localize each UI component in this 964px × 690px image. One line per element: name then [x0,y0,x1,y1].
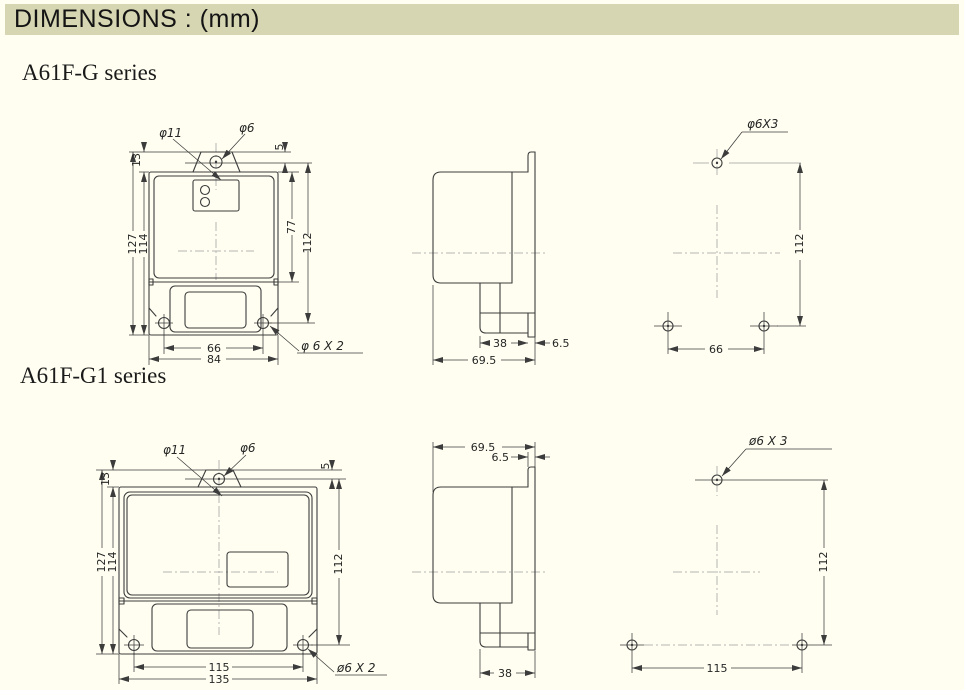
g1-hole-pattern-drawing: ø6 X 3 112 115 [600,430,880,690]
g-side-dim-38: 38 [493,337,507,350]
g1-holes-dim-112: 112 [817,552,830,573]
page-title: DIMENSIONS : (mm) [5,4,959,35]
g-front-dimension-text: φ11 φ6 13 5 127 114 77 112 66 84 φ 6 X 2 [126,121,344,366]
g-side-outline [433,152,535,337]
g-holes-note: φ6X3 [747,117,778,131]
g1-front-dim-112: 112 [332,554,345,575]
g-front-outline [149,152,278,335]
g-front-dim-13: 13 [130,153,143,167]
series-label-g: A61F-G series [22,60,157,86]
g-holes-dim-66: 66 [709,343,723,356]
g-front-dim-77: 77 [285,220,298,234]
g-front-phi11-label: φ11 [159,126,182,140]
g1-holes-note: ø6 X 3 [748,434,787,448]
g1-holes-dim-115: 115 [707,662,728,675]
g-front-dim-84: 84 [207,353,221,366]
g-front-view-drawing: φ11 φ6 13 5 127 114 77 112 66 84 φ 6 X 2 [115,110,370,370]
g1-front-dim-13: 13 [99,472,112,486]
g-side-dimension-lines [433,285,550,365]
g-front-dim-114: 114 [137,234,150,255]
g1-side-outline [433,467,535,650]
section-header-bar: DIMENSIONS : (mm) [5,4,959,35]
g1-holes-outline [620,475,828,658]
g1-front-phi6-label: φ6 [240,441,256,455]
g1-side-dim-38: 38 [498,667,512,680]
g1-front-phi11-label: φ11 [163,443,186,457]
g1-holes-centerlines [644,466,790,645]
g-holes-centerlines [673,149,801,298]
g-hole-pattern-drawing: φ6X3 112 66 [620,110,845,370]
g-front-hole-note: φ 6 X 2 [301,339,344,353]
g1-front-centerlines [163,460,278,635]
g-holes-dimension-lines [668,132,806,354]
g1-side-dim-6-5: 6.5 [492,451,510,464]
g-holes-dimension-text: φ6X3 112 66 [709,117,806,356]
g-side-dim-69-5: 69.5 [472,354,497,367]
g-holes-outline [654,158,778,340]
g1-side-view-drawing: 69.5 6.5 38 [410,430,595,690]
g1-front-hole-note: ø6 X 2 [336,661,375,675]
g-holes-dim-112: 112 [793,234,806,255]
g-front-dim-112: 112 [301,233,314,254]
g-front-dim-5: 5 [273,144,286,151]
g1-front-outline [119,470,317,655]
g1-front-dim-5: 5 [319,463,332,470]
g-front-phi6-label: φ6 [239,121,255,135]
g1-front-dim-135: 135 [209,673,230,686]
g1-front-dim-114: 114 [106,552,119,573]
g1-side-dimension-text: 69.5 6.5 38 [471,441,512,680]
g-side-dimension-text: 38 6.5 69.5 [472,337,570,367]
g1-holes-dimension-text: ø6 X 3 112 115 [707,434,831,675]
g1-side-dimension-lines [433,442,550,678]
g1-front-view-drawing: φ11 φ6 13 5 127 114 112 115 135 ø6 X 2 [80,430,400,690]
g-side-view-drawing: 38 6.5 69.5 [410,130,595,370]
g-side-dim-6-5: 6.5 [552,337,570,350]
datasheet-dimensions-page: DIMENSIONS : (mm) A61F-G series A61F-G1 … [0,0,964,690]
